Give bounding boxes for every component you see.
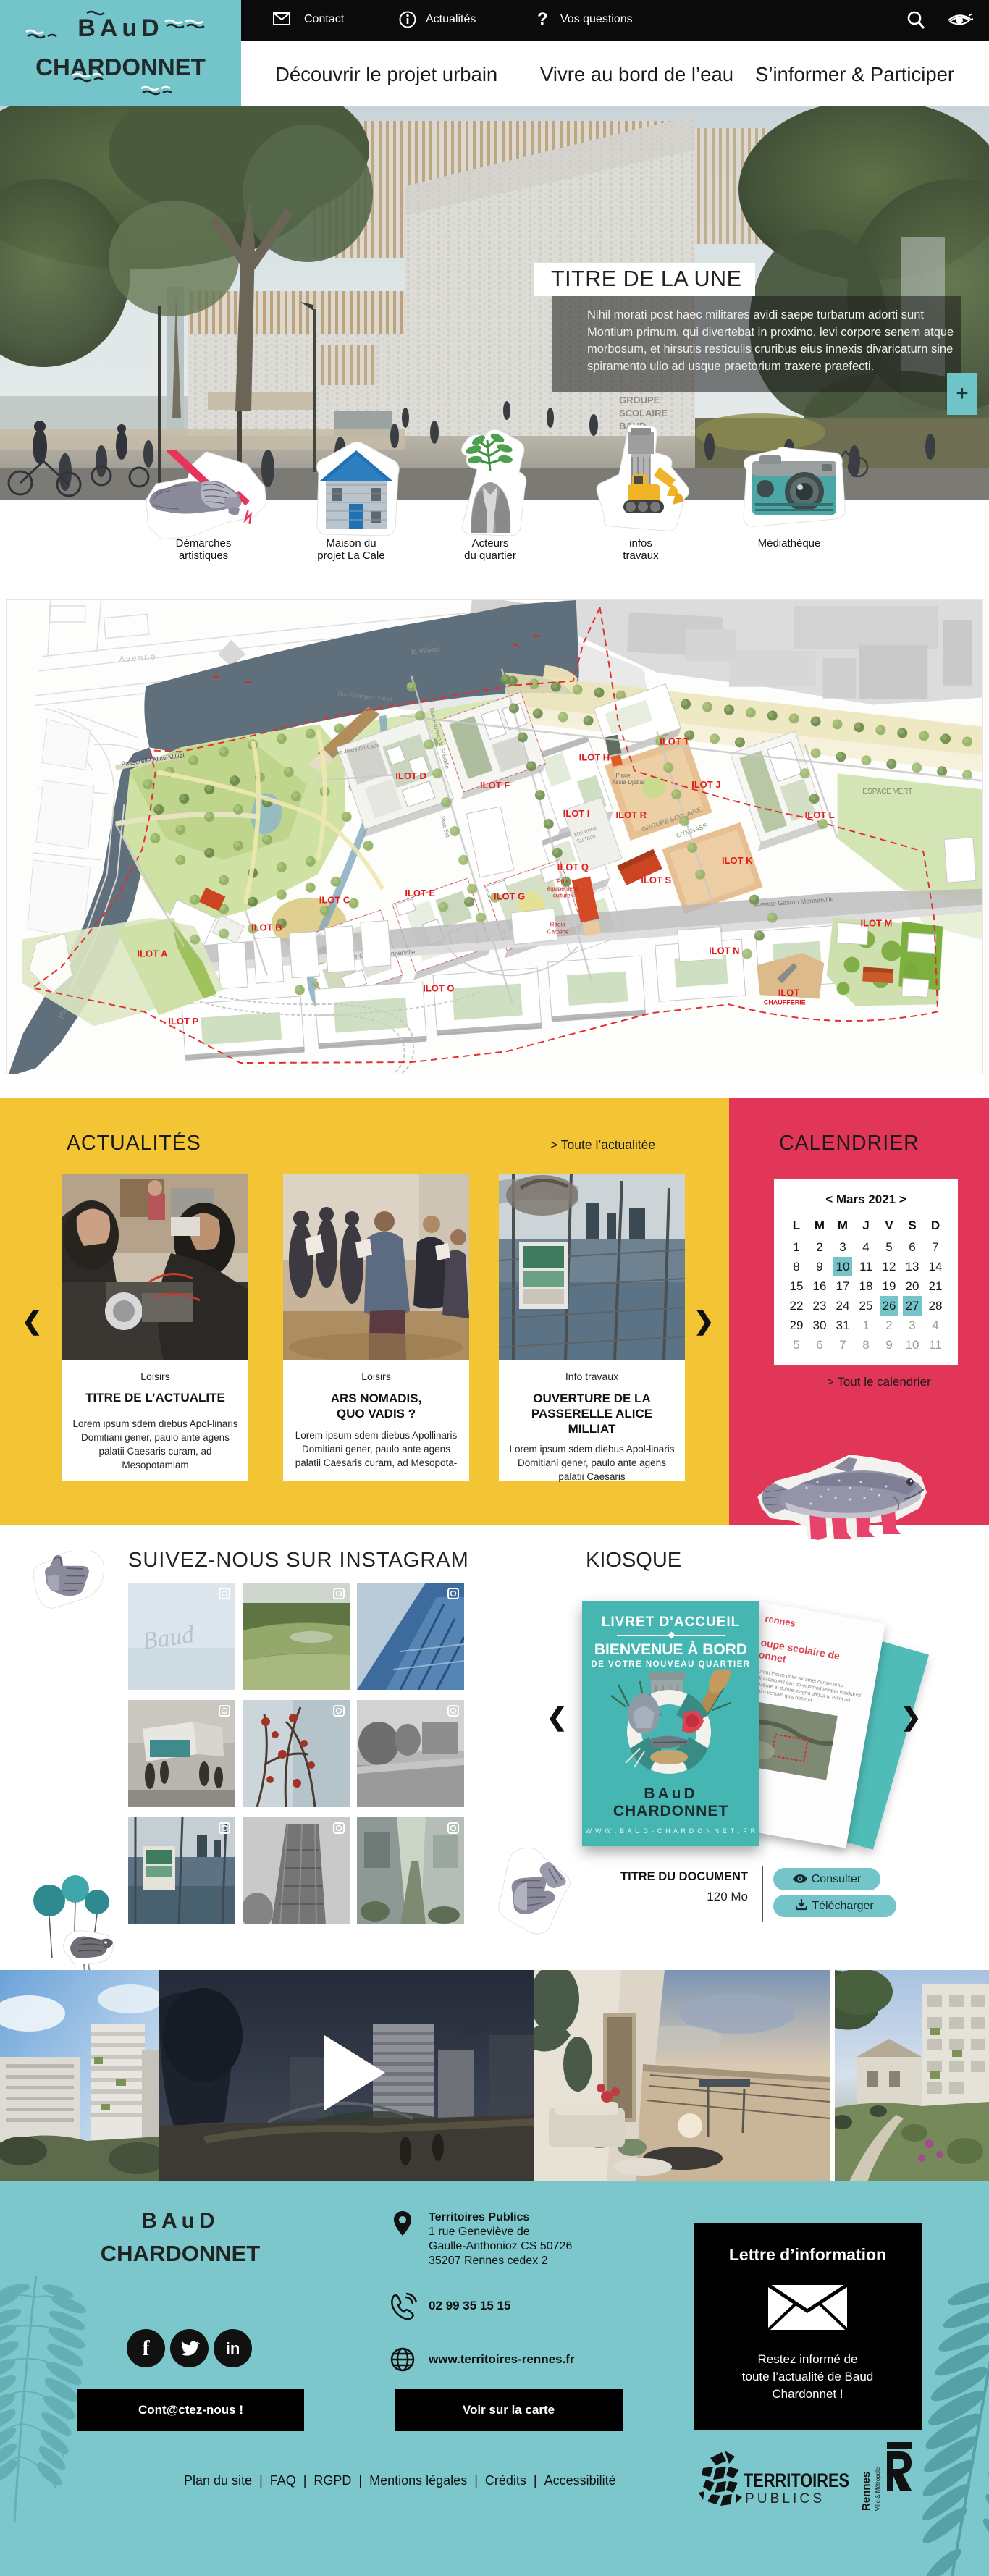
svg-text:ESPACE VERT: ESPACE VERT bbox=[862, 788, 912, 796]
svg-text:ILOT N: ILOT N bbox=[709, 946, 739, 956]
svg-text:ILOT F: ILOT F bbox=[480, 780, 510, 791]
svg-text:ILOT D: ILOT D bbox=[395, 770, 426, 781]
svg-text:Caroline: Caroline bbox=[547, 929, 569, 935]
svg-text:équipement: équipement bbox=[547, 885, 578, 892]
svg-text:ILOT H: ILOT H bbox=[579, 752, 610, 762]
svg-text:Place: Place bbox=[615, 772, 631, 778]
svg-text:ILOT R: ILOT R bbox=[615, 809, 647, 820]
svg-text:ILOT A: ILOT A bbox=[138, 948, 169, 959]
svg-text:culturel: culturel bbox=[553, 893, 572, 899]
svg-text:ILOT S: ILOT S bbox=[641, 875, 671, 885]
svg-text:Radio: Radio bbox=[550, 922, 565, 928]
svg-text:ILOT P: ILOT P bbox=[168, 1016, 198, 1027]
svg-text:ILOT O: ILOT O bbox=[423, 982, 454, 993]
svg-text:Ville & Métropole: Ville & Métropole bbox=[875, 2467, 881, 2511]
svg-text:Rennes: Rennes bbox=[860, 2472, 872, 2511]
svg-text:PUBLICS: PUBLICS bbox=[745, 2491, 825, 2506]
svg-text:CHAUFFERIE: CHAUFFERIE bbox=[764, 998, 806, 1006]
svg-text:ILOT C: ILOT C bbox=[319, 895, 350, 906]
svg-text:ILOT L: ILOT L bbox=[805, 809, 835, 820]
svg-text:Assia Djebar: Assia Djebar bbox=[613, 779, 646, 786]
svg-text:ILOT: ILOT bbox=[778, 987, 800, 998]
svg-text:ILOT M: ILOT M bbox=[860, 918, 892, 929]
svg-text:ILOT T: ILOT T bbox=[660, 736, 689, 746]
svg-text:TERRITOIRES: TERRITOIRES bbox=[744, 2470, 849, 2491]
svg-text:GROUPE: GROUPE bbox=[619, 395, 660, 405]
svg-text:ILOT Q: ILOT Q bbox=[557, 862, 589, 872]
svg-text:Pôle: Pôle bbox=[557, 878, 570, 885]
svg-text:ILOT K: ILOT K bbox=[722, 855, 753, 866]
svg-text:ILOT G: ILOT G bbox=[494, 891, 525, 902]
svg-text:Avenue: Avenue bbox=[119, 651, 157, 665]
svg-text:ILOT I: ILOT I bbox=[563, 808, 590, 819]
svg-text:SCOLAIRE: SCOLAIRE bbox=[619, 408, 668, 418]
svg-text:ILOT J: ILOT J bbox=[691, 779, 720, 790]
svg-text:ILOT B: ILOT B bbox=[251, 922, 282, 933]
svg-text:ILOT E: ILOT E bbox=[405, 888, 435, 898]
svg-text:Parc Est: Parc Est bbox=[439, 815, 451, 838]
